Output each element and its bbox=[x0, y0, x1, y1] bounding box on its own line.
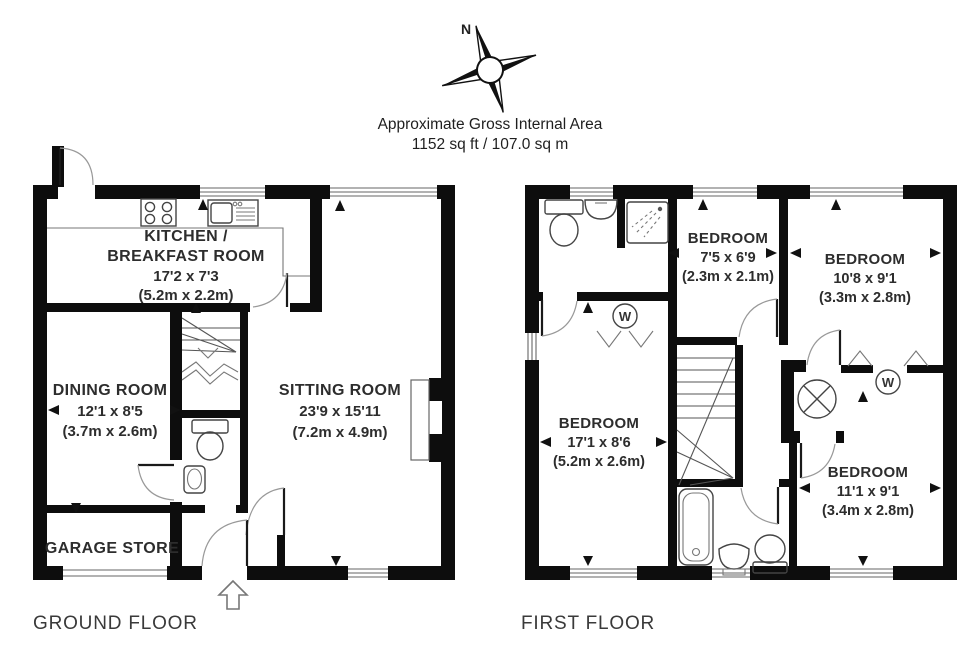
floorplan-page: N Approximate Gross Internal Area 1152 s… bbox=[0, 0, 980, 653]
stairs bbox=[182, 318, 240, 384]
window bbox=[200, 185, 265, 199]
window bbox=[348, 566, 388, 580]
svg-text:W: W bbox=[882, 375, 895, 390]
room-dims-bedroom-small-imperial: 7'5 x 6'9 bbox=[700, 250, 755, 266]
window bbox=[570, 566, 637, 580]
cylinder-symbol bbox=[798, 380, 836, 418]
room-label-bedroom-front: BEDROOM bbox=[828, 464, 908, 481]
toilet bbox=[545, 200, 583, 246]
window bbox=[830, 566, 893, 580]
entrance-arrow bbox=[219, 581, 247, 609]
room-dims-bedroom-main-metric: (5.2m x 2.6m) bbox=[553, 454, 645, 470]
room-dims-bedroom-small-metric: (2.3m x 2.1m) bbox=[682, 269, 774, 285]
compass-rose: N bbox=[425, 8, 552, 131]
first-floor-plan: W W bbox=[521, 185, 957, 634]
ground-floor-plan: KITCHEN / BREAKFAST ROOM 17'2 x 7'3 (5.2… bbox=[33, 146, 455, 634]
shower-cubicle bbox=[627, 202, 668, 243]
room-label-bedroom-small: BEDROOM bbox=[688, 230, 768, 247]
toilet bbox=[192, 420, 228, 460]
room-dims-bedroom-rear-imperial: 10'8 x 9'1 bbox=[833, 271, 896, 287]
area-value: 1152 sq ft / 107.0 sq m bbox=[412, 136, 569, 153]
room-label-sitting: SITTING ROOM bbox=[279, 382, 401, 399]
window bbox=[525, 333, 539, 360]
room-dims-dining-metric: (3.7m x 2.6m) bbox=[62, 423, 157, 440]
room-label-kitchen: BREAKFAST ROOM bbox=[107, 248, 265, 265]
wardrobe-symbol: W bbox=[597, 304, 653, 347]
door-arc bbox=[739, 299, 777, 337]
window bbox=[330, 185, 437, 199]
door-arc bbox=[253, 273, 287, 307]
svg-text:W: W bbox=[619, 309, 632, 324]
door-arc bbox=[542, 300, 577, 336]
floorplan-canvas: N Approximate Gross Internal Area 1152 s… bbox=[0, 0, 980, 653]
ground-floor-label: GROUND FLOOR bbox=[33, 613, 198, 634]
window bbox=[693, 185, 757, 199]
fireplace bbox=[411, 378, 455, 462]
room-label-bedroom-rear: BEDROOM bbox=[825, 251, 905, 268]
door-arc bbox=[807, 330, 840, 365]
room-dims-kitchen-metric: (5.2m x 2.2m) bbox=[138, 287, 233, 304]
door-arc bbox=[741, 487, 778, 524]
room-label-bedroom-main: BEDROOM bbox=[559, 415, 639, 432]
room-dims-bedroom-front-metric: (3.4m x 2.8m) bbox=[822, 503, 914, 519]
room-dims-dining-imperial: 12'1 x 8'5 bbox=[77, 403, 143, 420]
window bbox=[810, 185, 903, 199]
area-title: Approximate Gross Internal Area bbox=[378, 116, 603, 133]
window bbox=[570, 185, 613, 199]
room-dims-kitchen-imperial: 17'2 x 7'3 bbox=[153, 268, 219, 285]
room-dims-sitting-imperial: 23'9 x 15'11 bbox=[299, 403, 380, 420]
door-arc bbox=[246, 488, 284, 535]
room-dims-bedroom-front-imperial: 11'1 x 9'1 bbox=[837, 484, 900, 500]
room-label-kitchen: KITCHEN / bbox=[144, 228, 228, 245]
basin bbox=[184, 466, 205, 493]
stairs bbox=[677, 358, 735, 485]
room-label-dining: DINING ROOM bbox=[53, 382, 168, 399]
door-arc bbox=[60, 148, 93, 185]
room-label-garage: GARAGE STORE bbox=[45, 540, 179, 557]
room-dims-sitting-metric: (7.2m x 4.9m) bbox=[292, 424, 387, 441]
room-dims-bedroom-rear-metric: (3.3m x 2.8m) bbox=[819, 290, 911, 306]
garage-door bbox=[63, 566, 167, 580]
kitchen-sink bbox=[208, 200, 258, 226]
kitchen-hob bbox=[141, 199, 176, 226]
bath bbox=[679, 489, 713, 565]
basin bbox=[585, 200, 617, 219]
door-arc bbox=[138, 465, 174, 500]
first-floor-label: FIRST FLOOR bbox=[521, 613, 655, 634]
compass-north-label: N bbox=[461, 21, 471, 37]
room-dims-bedroom-main-imperial: 17'1 x 8'6 bbox=[567, 435, 630, 451]
door-arc bbox=[202, 520, 247, 566]
